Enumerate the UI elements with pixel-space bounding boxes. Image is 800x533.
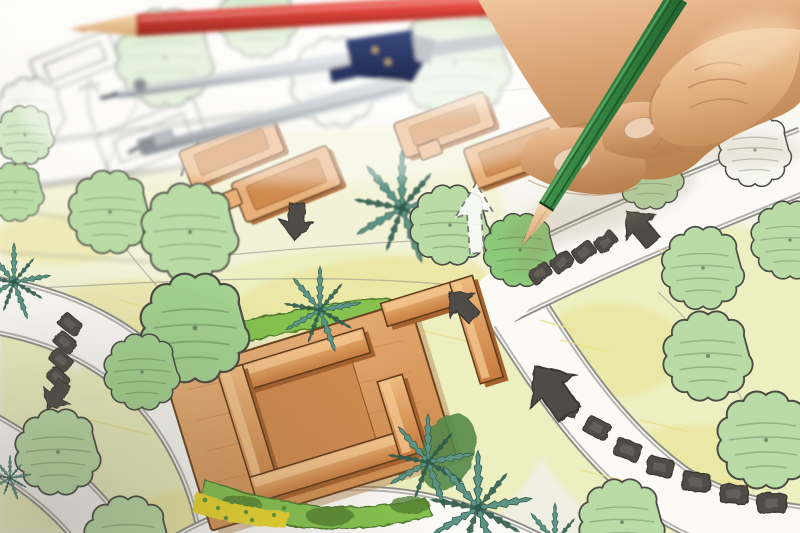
corner-vignette: [0, 0, 800, 533]
photo-landscape-plan: Close-up of a landscape architect's hand…: [0, 0, 800, 533]
scene-canvas: [0, 0, 800, 533]
